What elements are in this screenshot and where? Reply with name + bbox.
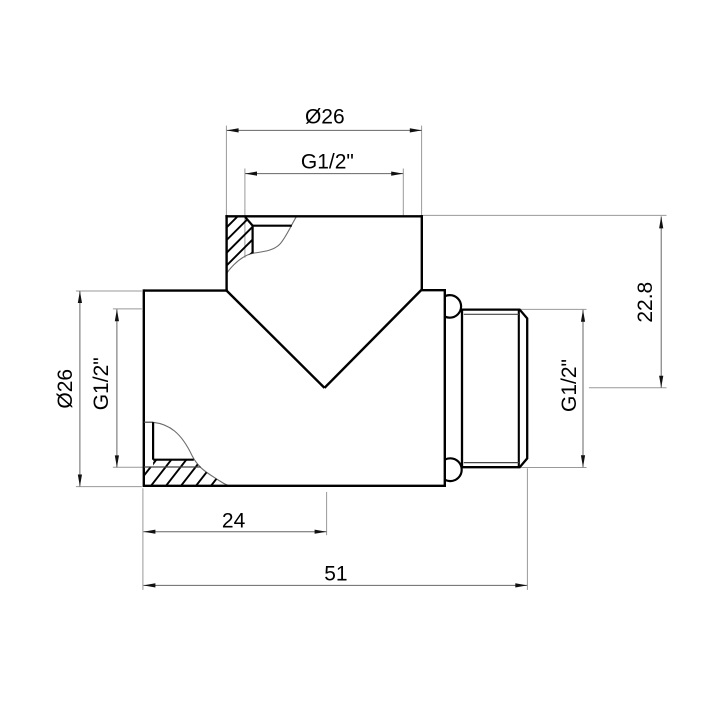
svg-text:22.8: 22.8 [634, 282, 657, 323]
svg-text:24: 24 [222, 510, 246, 533]
svg-text:G1/2": G1/2" [90, 357, 113, 410]
svg-text:51: 51 [324, 562, 347, 585]
svg-text:Ø26: Ø26 [305, 106, 345, 129]
svg-text:G1/2": G1/2" [301, 150, 354, 173]
svg-text:G1/2": G1/2" [558, 359, 581, 412]
svg-text:Ø26: Ø26 [54, 369, 77, 409]
